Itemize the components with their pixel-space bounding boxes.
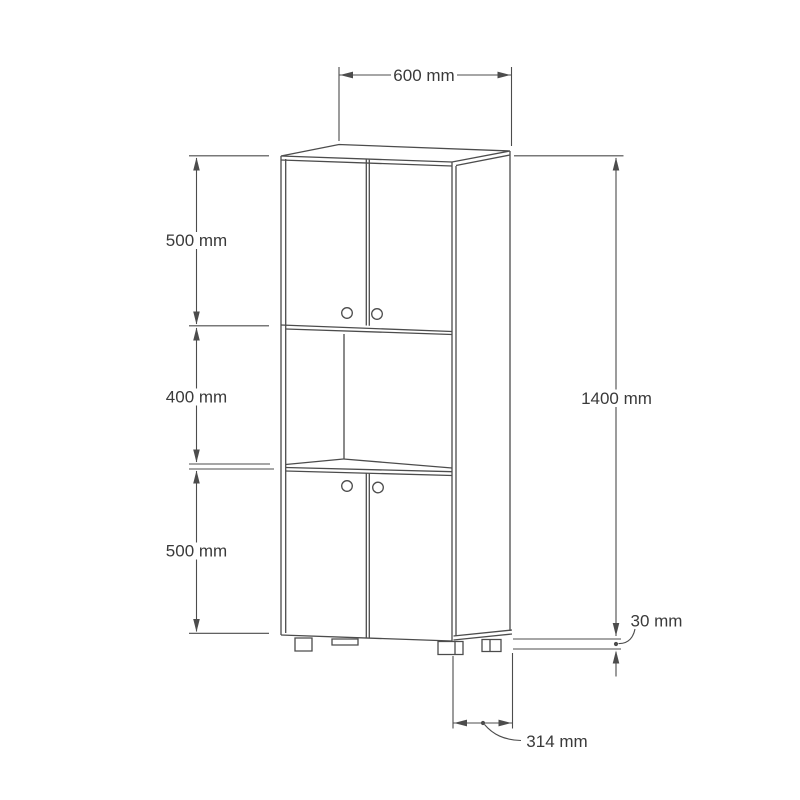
dimension-top-width: 600 mm (339, 66, 512, 146)
foot (482, 640, 501, 652)
foot (438, 642, 463, 655)
dimension-depth: 314 mm (453, 653, 588, 751)
dimension-label-lower-section: 500 mm (166, 542, 227, 561)
door-knob (342, 308, 353, 319)
arrowhead-right (498, 72, 511, 79)
dimension-label-foot-height: 30 mm (631, 612, 683, 631)
dimension-label-depth: 314 mm (526, 732, 587, 751)
door-knob (373, 482, 384, 493)
dimension-foot-height: 30 mm (513, 612, 682, 677)
arrowhead-up (613, 651, 620, 664)
door-knob (342, 481, 353, 492)
door-knob (372, 309, 383, 320)
dimension-label-upper-section: 500 mm (166, 231, 227, 250)
leader-line (619, 629, 636, 644)
leader-dot (614, 642, 618, 646)
lower-doors (286, 471, 452, 638)
arrowhead-down (613, 623, 620, 636)
cabinet-dimension-drawing: 600 mm 500 mm 400 mm 500 mm (0, 0, 800, 800)
open-shelf-niche (286, 329, 452, 472)
dimension-middle-section: 400 mm (165, 328, 228, 463)
arrowhead-left (340, 72, 353, 79)
arrowhead-up (613, 158, 620, 171)
leader-line (485, 725, 522, 741)
dimension-left-column: 500 mm 400 mm 500 mm (165, 156, 274, 634)
arrowhead-up (193, 158, 200, 171)
arrowhead-up (193, 328, 200, 341)
dimension-label-top-width: 600 mm (393, 66, 454, 85)
cabinet-top-face (281, 145, 510, 167)
upper-doors (281, 160, 452, 332)
arrowhead-down (193, 450, 200, 463)
arrowhead-down (193, 312, 200, 325)
arrowhead-down (193, 619, 200, 632)
arrowhead-left (454, 720, 467, 727)
cabinet (281, 145, 512, 655)
niche-ceiling-edge (286, 329, 452, 335)
top-face-outline (281, 145, 510, 163)
dimension-label-total-height: 1400 mm (581, 389, 652, 408)
foot (332, 639, 358, 645)
shelf-back-edge (344, 459, 453, 468)
dimension-upper-section: 500 mm (165, 158, 228, 325)
arrowhead-up (193, 471, 200, 484)
dimension-total-height: 1400 mm (514, 156, 653, 636)
feet (295, 638, 501, 655)
leader-dot (481, 721, 485, 725)
arrowhead-right (499, 720, 512, 727)
dimension-label-middle-section: 400 mm (166, 388, 227, 407)
shelf-left-slant-edge (286, 459, 344, 465)
dimension-lower-section: 500 mm (165, 471, 228, 633)
upper-door-bottom-edge (281, 325, 452, 332)
side-panel (454, 151, 513, 640)
diagram-canvas: 600 mm 500 mm 400 mm 500 mm (0, 0, 800, 800)
foot (295, 638, 312, 651)
